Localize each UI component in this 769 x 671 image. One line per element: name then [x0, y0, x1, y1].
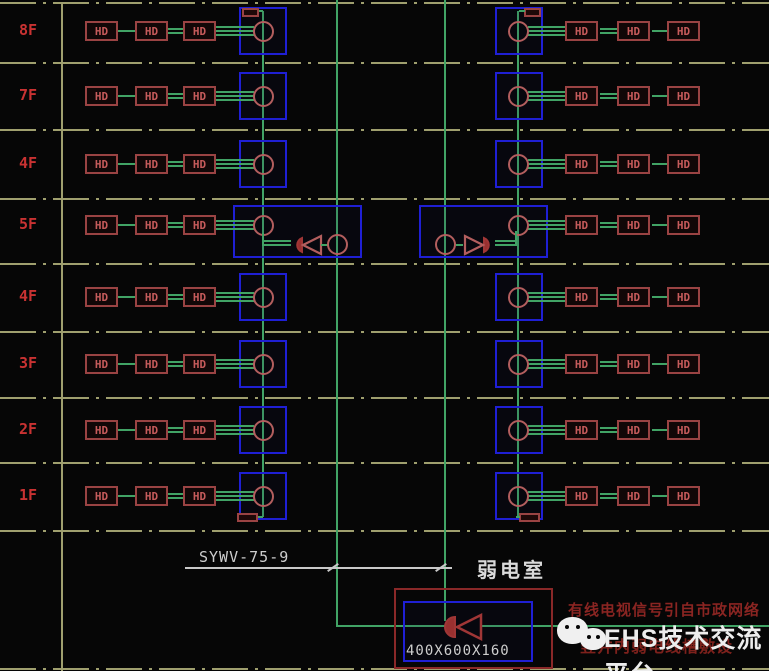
cable-line [528, 26, 565, 28]
tap-circle [253, 86, 274, 107]
cable-line [600, 497, 617, 499]
cable-line [216, 26, 254, 28]
cable-line [528, 499, 565, 501]
room-label: 弱电室 [477, 554, 546, 583]
cable-line [528, 491, 565, 493]
cable-line [600, 97, 617, 99]
amp-feed-line [515, 231, 517, 245]
cable-line [528, 359, 565, 361]
hd-device: HD [617, 215, 650, 235]
cable-line [168, 222, 183, 224]
cable-line [118, 224, 135, 226]
hd-device: HD [565, 86, 598, 106]
floor-label: 8F [6, 21, 50, 41]
hd-device: HD [135, 287, 168, 307]
cable-line [216, 491, 254, 493]
hd-device: HD [85, 154, 118, 174]
hd-device: HD [135, 354, 168, 374]
cable-line [216, 296, 254, 298]
cable-line [652, 163, 667, 165]
cable-line [216, 220, 254, 222]
hd-device: HD [183, 154, 216, 174]
hd-device: HD [667, 486, 700, 506]
cable-line [600, 365, 617, 367]
cable-line [216, 159, 254, 161]
cable-line [652, 95, 667, 97]
floor-label: 5F [6, 215, 50, 235]
cable-line [216, 292, 254, 294]
cable-line [216, 363, 254, 365]
cable-line [652, 429, 667, 431]
hd-device: HD [135, 86, 168, 106]
cable-line [528, 95, 565, 97]
wechat-icon [556, 614, 608, 656]
tap-circle [508, 354, 529, 375]
cable-line [168, 431, 183, 433]
amp-feed-line [495, 240, 517, 242]
floor-label: 7F [6, 86, 50, 106]
hd-device: HD [667, 420, 700, 440]
hd-device: HD [85, 21, 118, 41]
cable-terminator [237, 513, 258, 522]
cable-line [528, 159, 565, 161]
tap-circle [253, 354, 274, 375]
cable-line [216, 30, 254, 32]
hd-device: HD [565, 154, 598, 174]
hd-device: HD [667, 215, 700, 235]
hd-device: HD [183, 354, 216, 374]
cable-line [216, 300, 254, 302]
terminator-link [516, 516, 520, 518]
floor-label: 1F [6, 486, 50, 506]
tap-circle [508, 154, 529, 175]
cable-line [216, 228, 254, 230]
amp-feed-line [495, 244, 517, 246]
cable-line [600, 431, 617, 433]
hd-device: HD [183, 21, 216, 41]
hd-device: HD [667, 354, 700, 374]
tap-circle [253, 420, 274, 441]
hd-device: HD [85, 287, 118, 307]
cable-line [600, 294, 617, 296]
cable-terminator [519, 513, 540, 522]
hd-device: HD [565, 215, 598, 235]
cable-line [118, 495, 135, 497]
riser-line [444, 0, 446, 621]
hd-device: HD [183, 86, 216, 106]
floor-separator [0, 331, 769, 333]
amplifier-icon [441, 609, 485, 645]
amplifier-circle [435, 234, 456, 255]
floor-label: 3F [6, 354, 50, 374]
cable-line [600, 32, 617, 34]
cable-line [168, 226, 183, 228]
cable-line [216, 167, 254, 169]
cable-line [600, 161, 617, 163]
cable-line [528, 34, 565, 36]
cable-line [168, 493, 183, 495]
floor-separator [0, 198, 769, 200]
cable-line [216, 224, 254, 226]
cable-callout-line [185, 567, 452, 569]
amplifier-icon [291, 233, 323, 257]
cable-line [216, 495, 254, 497]
cable-line [168, 427, 183, 429]
tap-circle [253, 287, 274, 308]
hd-device: HD [617, 420, 650, 440]
cable-line [652, 363, 667, 365]
cable-line [528, 99, 565, 101]
left-boundary-line [61, 2, 63, 671]
cable-line [652, 495, 667, 497]
floor-separator [0, 129, 769, 131]
hd-device: HD [183, 420, 216, 440]
cable-line [118, 30, 135, 32]
cable-line [216, 429, 254, 431]
cable-line [216, 95, 254, 97]
cable-line [528, 163, 565, 165]
cable-line [600, 427, 617, 429]
cable-line [528, 167, 565, 169]
hd-device: HD [565, 420, 598, 440]
watermark-text: EHS技术交流平台 [604, 619, 769, 671]
hd-device: HD [183, 486, 216, 506]
cable-terminator [242, 8, 259, 17]
hd-device: HD [565, 354, 598, 374]
cable-line [528, 228, 565, 230]
hd-device: HD [617, 486, 650, 506]
floor-separator [0, 397, 769, 399]
cable-line [168, 28, 183, 30]
hd-device: HD [667, 287, 700, 307]
hd-device: HD [667, 86, 700, 106]
cable-line [216, 34, 254, 36]
cad-riser-diagram: 8FHDHDHDHDHDHD7FHDHDHDHDHDHD4FHDHDHDHDHD… [0, 0, 769, 671]
amplifier-circle [327, 234, 348, 255]
hd-device: HD [183, 215, 216, 235]
floor-separator [0, 530, 769, 532]
floor-separator [0, 263, 769, 265]
cable-line [168, 361, 183, 363]
cable-line [528, 292, 565, 294]
hd-device: HD [667, 21, 700, 41]
tap-circle [508, 420, 529, 441]
amplifier-icon [463, 233, 495, 257]
hd-device: HD [135, 154, 168, 174]
hd-device: HD [85, 354, 118, 374]
cable-line [652, 224, 667, 226]
cable-line [652, 296, 667, 298]
cable-line [528, 30, 565, 32]
floor-label: 4F [6, 154, 50, 174]
hd-device: HD [565, 21, 598, 41]
hd-device: HD [135, 486, 168, 506]
hd-device: HD [617, 21, 650, 41]
cable-line [600, 226, 617, 228]
cable-line [528, 367, 565, 369]
cable-line [600, 165, 617, 167]
cable-line [216, 499, 254, 501]
cable-line [216, 163, 254, 165]
cable-terminator [524, 8, 541, 17]
cable-line [118, 363, 135, 365]
terminator-link [519, 10, 525, 12]
hd-device: HD [85, 86, 118, 106]
diagram-graphics-layer: 8FHDHDHDHDHDHD7FHDHDHDHDHDHD4FHDHDHDHDHD… [0, 0, 769, 671]
cable-line [216, 359, 254, 361]
floor-label: 2F [6, 420, 50, 440]
cable-line [216, 367, 254, 369]
cable-line [216, 433, 254, 435]
hd-device: HD [617, 287, 650, 307]
enclosure-size-label: 400X600X160 [406, 643, 510, 659]
cable-line [168, 165, 183, 167]
cable-line [528, 363, 565, 365]
wechat-bubble-small [580, 628, 606, 650]
cable-line [168, 365, 183, 367]
cable-line [600, 28, 617, 30]
cable-line [528, 429, 565, 431]
tap-circle [253, 486, 274, 507]
hd-device: HD [183, 287, 216, 307]
hd-device: HD [135, 215, 168, 235]
amp-feed-line [263, 240, 291, 242]
cable-line [528, 495, 565, 497]
cable-line [168, 161, 183, 163]
cable-line [652, 30, 667, 32]
floor-separator [0, 462, 769, 464]
tap-circle [508, 21, 529, 42]
hd-device: HD [85, 420, 118, 440]
cable-line [528, 433, 565, 435]
hd-device: HD [617, 154, 650, 174]
cable-line [118, 163, 135, 165]
tap-circle [508, 287, 529, 308]
cable-line [528, 425, 565, 427]
hd-device: HD [565, 287, 598, 307]
riser-line [336, 0, 338, 627]
cable-line [168, 497, 183, 499]
cable-line [528, 296, 565, 298]
cable-line [168, 93, 183, 95]
cable-line [600, 493, 617, 495]
terminator-link [259, 10, 263, 12]
hd-device: HD [135, 21, 168, 41]
terminator-link [258, 516, 263, 518]
cable-line [118, 429, 135, 431]
floor-label: 4F [6, 287, 50, 307]
tap-circle [508, 215, 529, 236]
cable-line [528, 220, 565, 222]
cable-line [600, 222, 617, 224]
cable-line [168, 298, 183, 300]
tap-circle [508, 486, 529, 507]
cable-line [216, 425, 254, 427]
riser-cable-label: SYWV-75-9 [199, 548, 289, 566]
cable-line [168, 32, 183, 34]
cable-line [600, 361, 617, 363]
cable-line [528, 91, 565, 93]
tap-circle [253, 21, 274, 42]
cable-line [118, 296, 135, 298]
hd-device: HD [85, 486, 118, 506]
cable-line [118, 95, 135, 97]
floor-separator [0, 2, 769, 4]
amp-link-line [456, 244, 463, 246]
floor-separator [0, 62, 769, 64]
cable-line [168, 97, 183, 99]
hd-device: HD [565, 486, 598, 506]
hd-device: HD [85, 215, 118, 235]
cable-line [528, 300, 565, 302]
cable-line [168, 294, 183, 296]
tap-circle [253, 154, 274, 175]
hd-device: HD [135, 420, 168, 440]
amp-feed-line [263, 244, 291, 246]
cable-line [216, 91, 254, 93]
hd-device: HD [617, 86, 650, 106]
tap-circle [508, 86, 529, 107]
cable-line [216, 99, 254, 101]
cable-line [528, 224, 565, 226]
hd-device: HD [617, 354, 650, 374]
cable-line [600, 93, 617, 95]
hd-device: HD [667, 154, 700, 174]
cable-line [600, 298, 617, 300]
